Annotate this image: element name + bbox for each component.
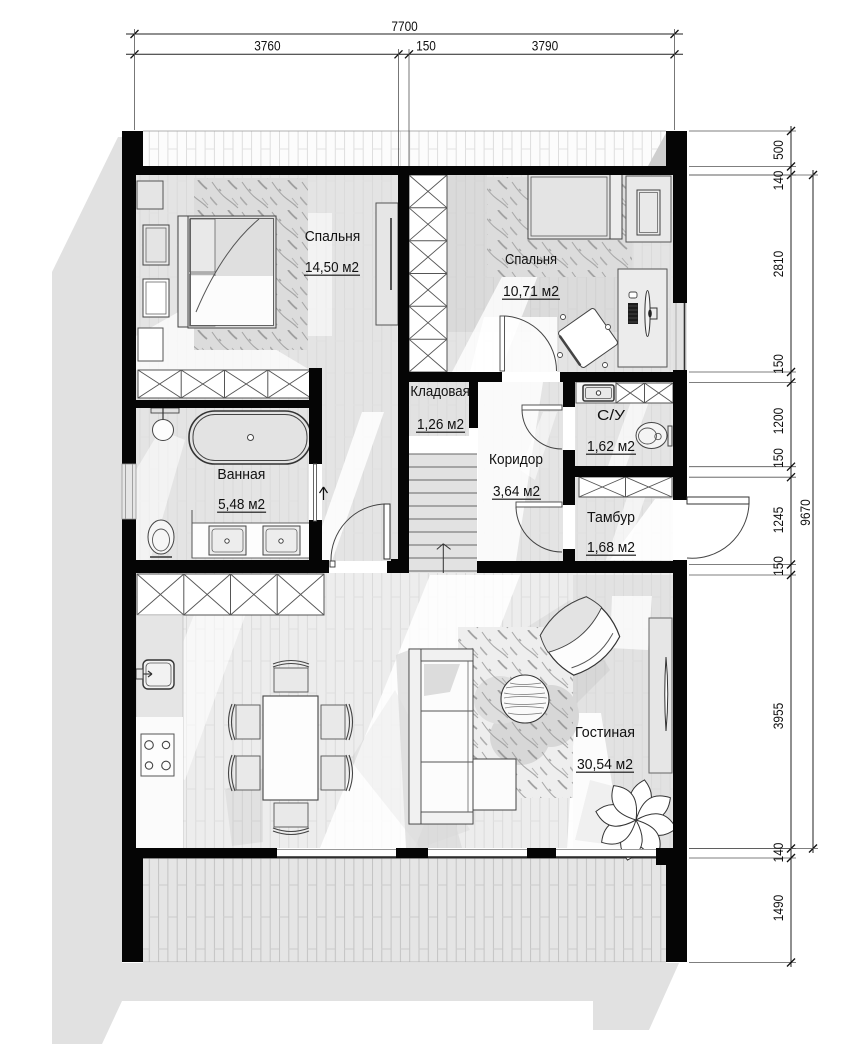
svg-text:Спальня: Спальня — [305, 229, 361, 245]
svg-text:3760: 3760 — [254, 37, 281, 53]
svg-text:1200: 1200 — [770, 408, 786, 435]
svg-text:3,64 м2: 3,64 м2 — [493, 484, 540, 500]
svg-text:500: 500 — [770, 140, 786, 160]
svg-text:14,50 м2: 14,50 м2 — [305, 260, 359, 276]
svg-text:150: 150 — [770, 556, 786, 576]
svg-text:150: 150 — [416, 37, 436, 53]
svg-text:9670: 9670 — [797, 499, 813, 526]
svg-text:3955: 3955 — [770, 703, 786, 730]
svg-text:2810: 2810 — [770, 251, 786, 278]
svg-text:Коридор: Коридор — [489, 452, 543, 468]
svg-text:140: 140 — [770, 842, 786, 862]
svg-text:Кладовая: Кладовая — [410, 384, 469, 400]
svg-text:1,62 м2: 1,62 м2 — [587, 439, 635, 455]
svg-text:150: 150 — [770, 354, 786, 374]
svg-text:Спальня: Спальня — [505, 252, 557, 268]
svg-text:140: 140 — [770, 170, 786, 190]
svg-text:5,48 м2: 5,48 м2 — [218, 497, 265, 513]
svg-text:150: 150 — [770, 448, 786, 468]
svg-text:30,54 м2: 30,54 м2 — [577, 757, 633, 773]
svg-text:Ванная: Ванная — [217, 467, 265, 483]
svg-text:1490: 1490 — [770, 895, 786, 922]
svg-text:1245: 1245 — [770, 507, 786, 534]
svg-text:1,68 м2: 1,68 м2 — [587, 540, 635, 556]
svg-text:С/У: С/У — [597, 408, 626, 424]
svg-text:Гостиная: Гостиная — [575, 725, 635, 741]
svg-text:1,26 м2: 1,26 м2 — [417, 417, 464, 433]
svg-text:Тамбур: Тамбур — [587, 510, 635, 526]
svg-text:3790: 3790 — [532, 37, 559, 53]
svg-text:10,71 м2: 10,71 м2 — [503, 284, 559, 300]
svg-text:7700: 7700 — [391, 18, 418, 34]
